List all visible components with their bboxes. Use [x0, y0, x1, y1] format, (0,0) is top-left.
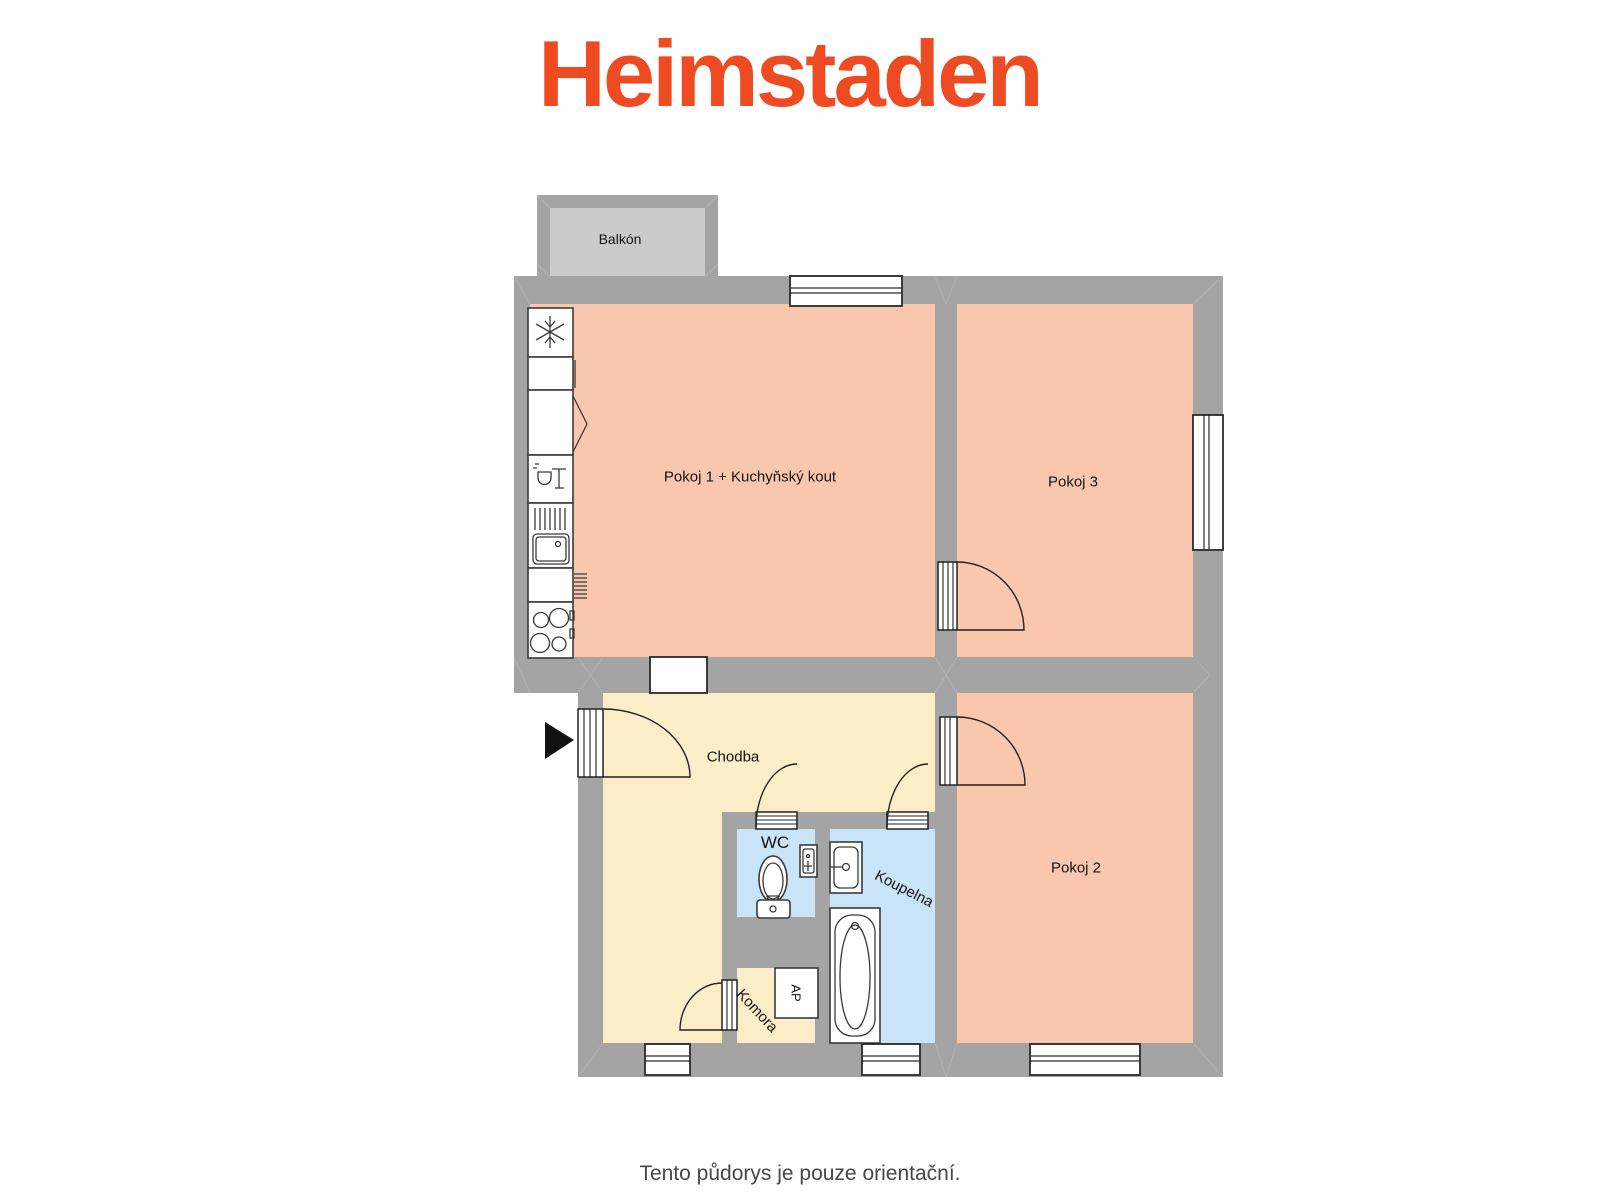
- entrance-arrow-icon: [545, 722, 574, 759]
- room1-label: Pokoj 1 + Kuchyňský kout: [664, 469, 836, 486]
- toilet: [757, 856, 790, 918]
- window-bottom-room2: [1030, 1044, 1140, 1075]
- window-bottom-bathroom: [862, 1044, 920, 1075]
- floor-plan: [0, 0, 1600, 1200]
- room3-label: Pokoj 3: [1048, 474, 1098, 491]
- washer-label: AP: [789, 984, 804, 1001]
- bath-washbasin: [830, 842, 862, 893]
- wall-middle: [514, 657, 1193, 693]
- window-top: [790, 276, 902, 306]
- window-right: [1193, 415, 1223, 550]
- disclaimer-caption: Tento půdorys je pouze orientační.: [0, 1162, 1600, 1186]
- wall-vertical-center: [935, 304, 957, 1043]
- kitchen-sink-icon: [535, 508, 565, 530]
- window-bottom-hall: [645, 1044, 690, 1075]
- kitchen-cabinet-1: [528, 357, 575, 390]
- hall-label: Chodba: [707, 749, 760, 766]
- dishwasher: [528, 455, 573, 503]
- fridge: [528, 308, 573, 357]
- floor-plan-page: Heimstaden: [0, 0, 1600, 1200]
- room2-label: Pokoj 2: [1051, 860, 1101, 877]
- balcony-label: Balkón: [599, 231, 642, 247]
- bathtub: [830, 908, 880, 1043]
- bathtub-icon: [830, 908, 880, 1043]
- wc-label: WC: [761, 833, 789, 853]
- wall-opening: [650, 657, 707, 693]
- kitchen-sink: [528, 503, 573, 568]
- stove: [528, 602, 574, 658]
- wc-washbasin: [800, 845, 817, 877]
